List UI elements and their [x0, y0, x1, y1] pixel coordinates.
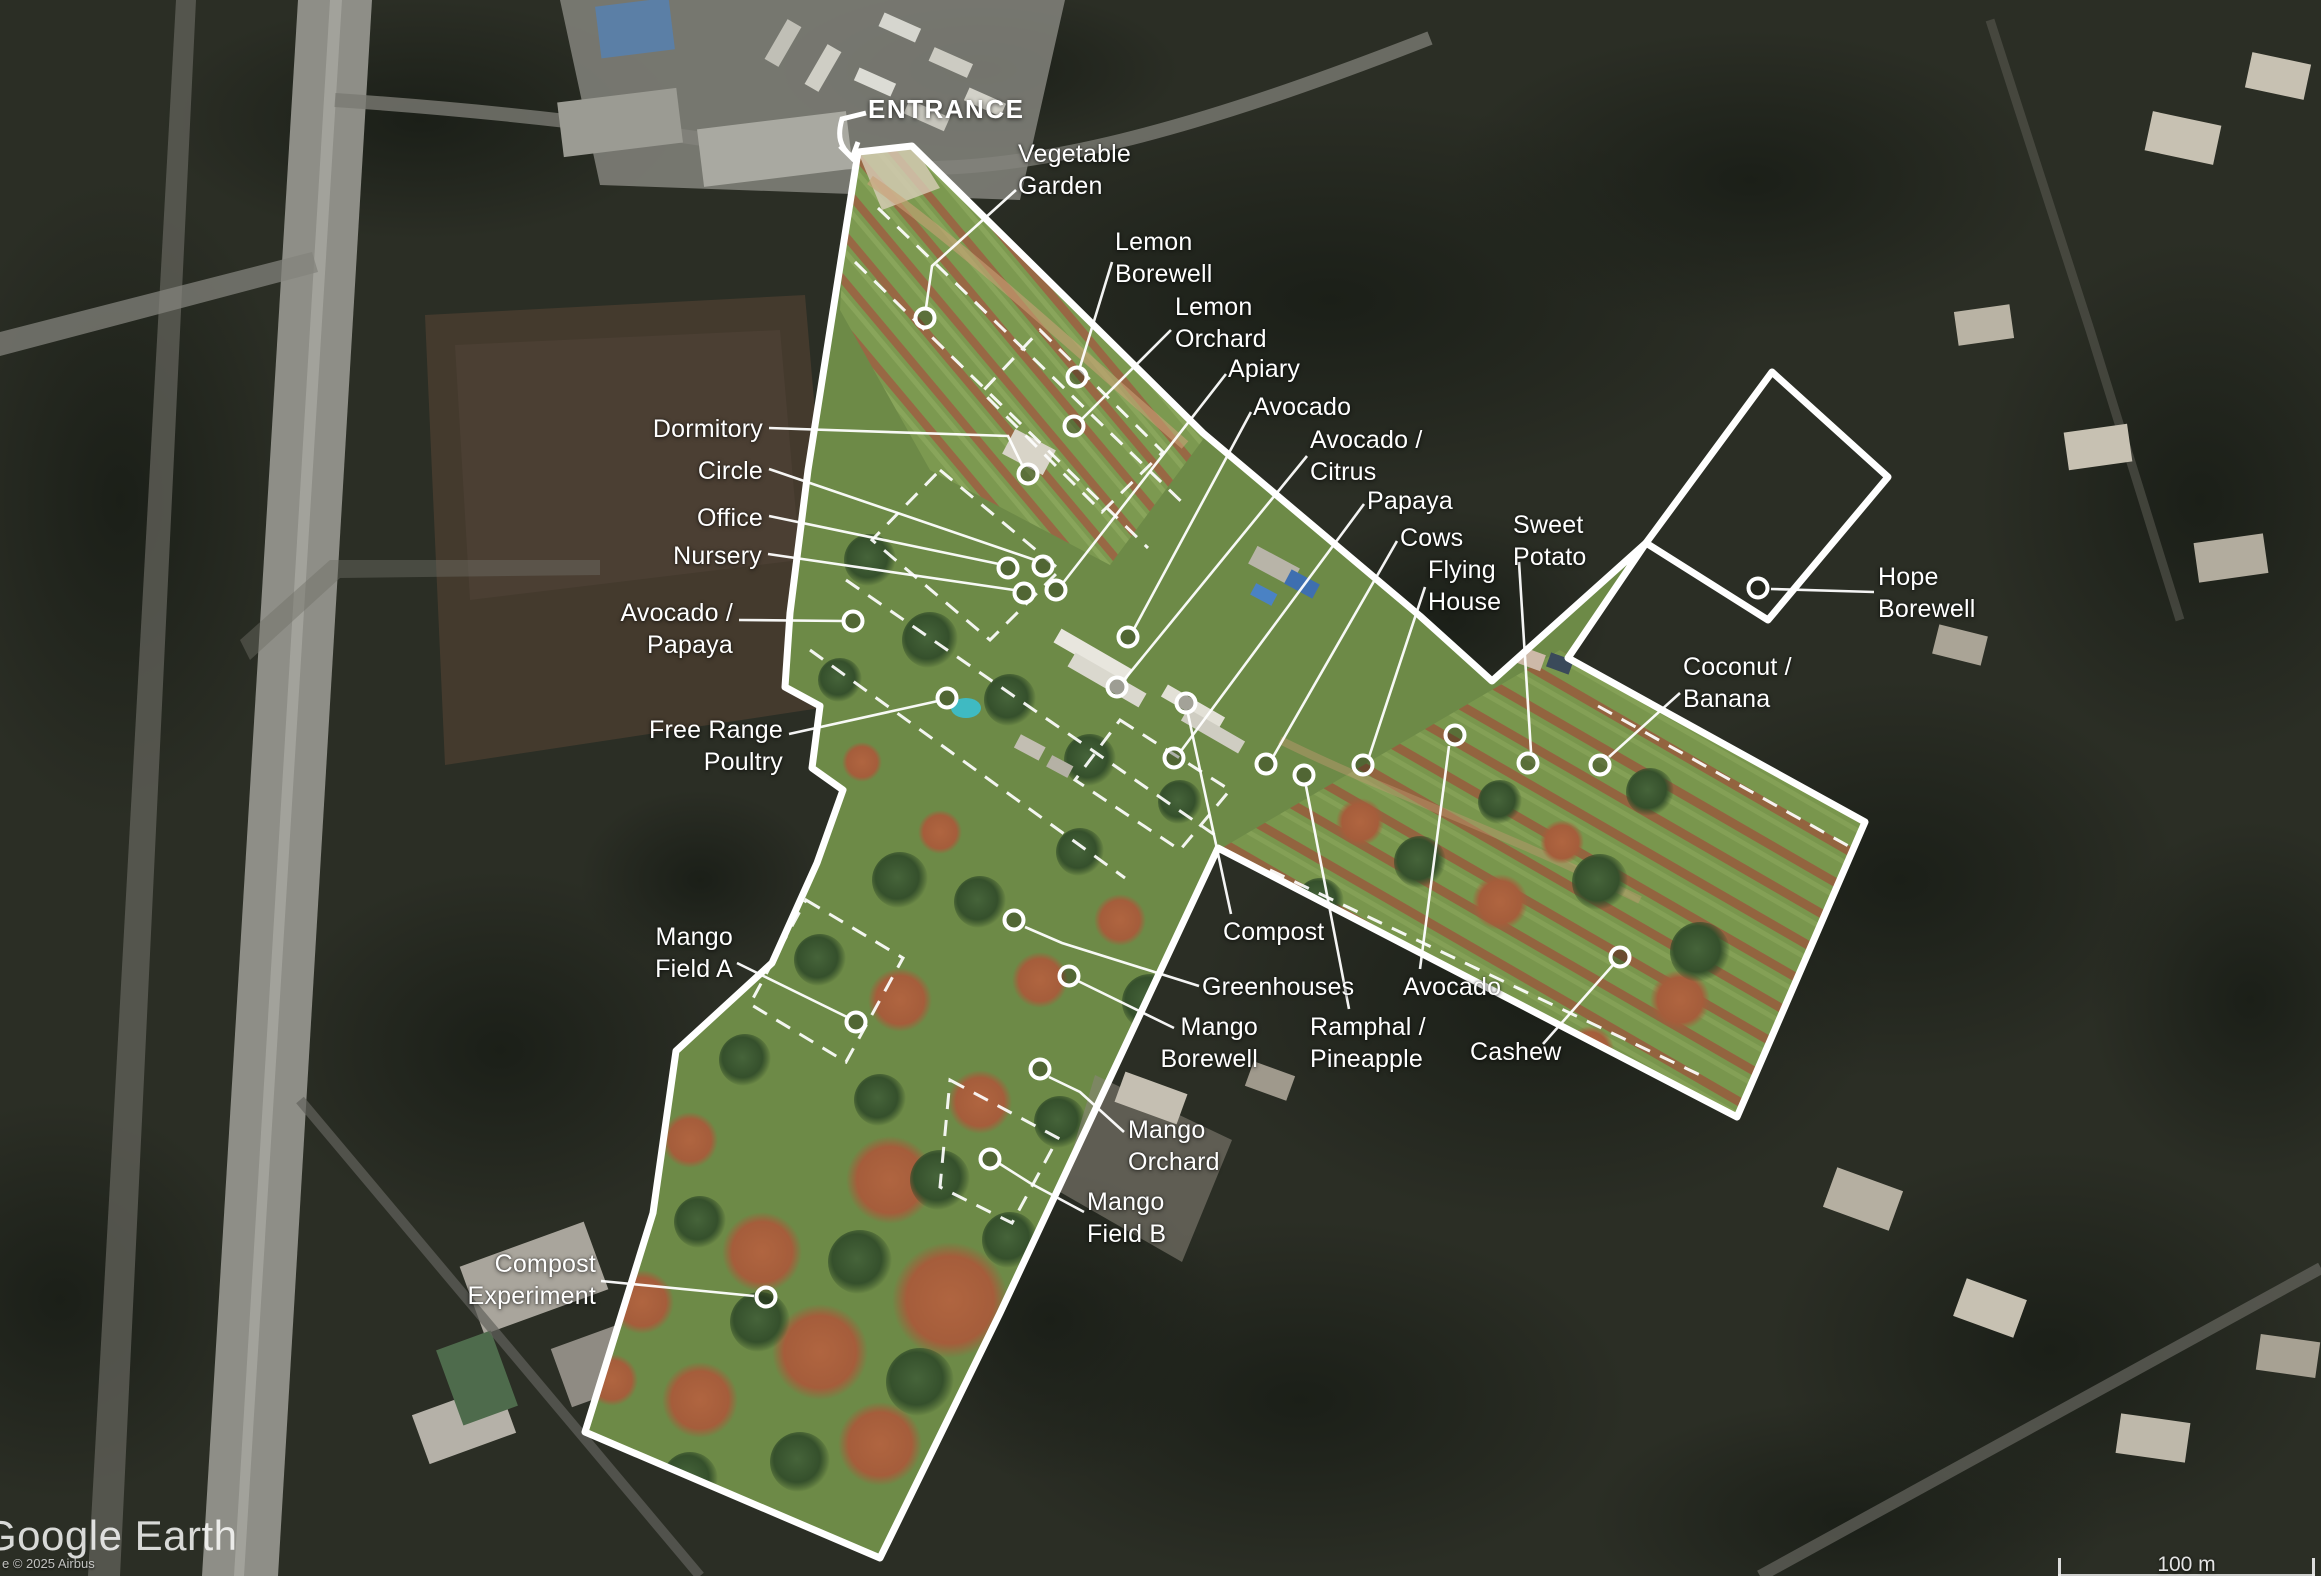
papaya-marker: [1165, 749, 1184, 768]
circle-marker: [1034, 557, 1053, 576]
cashew-marker: [1611, 948, 1630, 967]
compost-experiment-marker: [757, 1288, 776, 1307]
copyright-text: e © 2025 Airbus: [2, 1556, 95, 1571]
avocado-north-marker: [1119, 628, 1138, 647]
entrance-label: ENTRANCE: [868, 94, 1024, 125]
hope-borewell-marker: [1749, 579, 1768, 598]
avocado-citrus-marker: [1108, 678, 1127, 697]
satellite-map: Vegetable GardenLemon BorewellLemon Orch…: [0, 0, 2321, 1576]
mango-field-a-marker: [847, 1013, 866, 1032]
lemon-borewell-marker: [1068, 368, 1087, 387]
avocado-papaya-leader: [739, 620, 843, 621]
scale-bar: 100 m: [2058, 1552, 2315, 1576]
compost-marker: [1177, 694, 1196, 713]
vegetable-garden-marker: [916, 309, 935, 328]
map-canvas: [0, 0, 2321, 1576]
google-earth-logo: Google Earth: [0, 1512, 238, 1560]
mango-borewell-marker: [1060, 967, 1079, 986]
free-range-poultry-marker: [938, 689, 957, 708]
greenhouses-marker: [1005, 911, 1024, 930]
ramphal-pineapple-marker: [1295, 766, 1314, 785]
sweet-potato-marker: [1519, 754, 1538, 773]
avocado-papaya-marker: [844, 612, 863, 631]
mango-field-b-marker: [981, 1150, 1000, 1169]
nursery-marker: [1015, 584, 1034, 603]
dormitory-marker: [1019, 465, 1038, 484]
avocado-south-marker: [1446, 726, 1465, 745]
office-marker: [999, 559, 1018, 578]
scale-label: 100 m: [2058, 1553, 2315, 1576]
apiary-marker: [1047, 581, 1066, 600]
flying-house-marker: [1354, 756, 1373, 775]
lemon-orchard-marker: [1065, 417, 1084, 436]
cows-marker: [1257, 755, 1276, 774]
coconut-banana-marker: [1591, 756, 1610, 775]
mango-orchard-marker: [1031, 1060, 1050, 1079]
